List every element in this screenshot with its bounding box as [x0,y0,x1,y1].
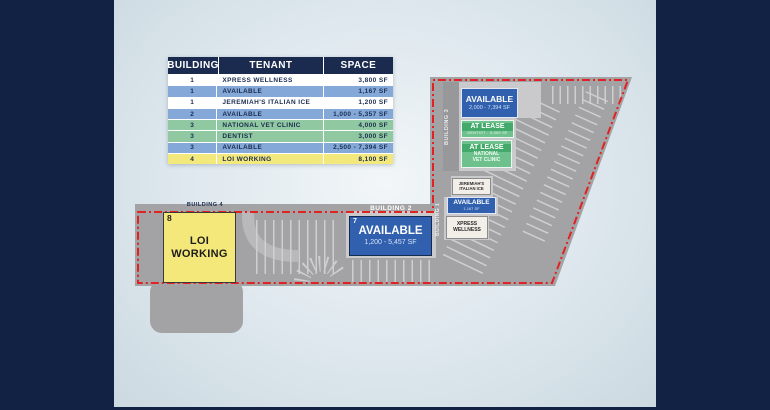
table-row: 1AVAILABLE1,167 SF [168,85,393,96]
building1-available-unit: AVAILABLE 1,167 SF [447,197,496,214]
building2-available-unit: 7 AVAILABLE 1,200 - 5,457 SF [349,216,432,256]
unit-title: AVAILABLE [358,225,422,238]
building3-dentist-unit: AT LEASE DENTIST - 3,000 SF [461,120,514,138]
cell-tenant: NATIONAL VET CLINIC [217,120,324,130]
table-row: 1XPRESS WELLNESS3,800 SF [168,74,393,85]
cell-tenant: AVAILABLE [217,86,324,96]
tenant-line2: ITALIAN ICE [459,187,483,192]
building3-label: BUILDING 3 [444,86,458,168]
cell-building: 1 [168,86,217,96]
unit-detail-line2: VET CLINIC [473,158,501,164]
building3-vet-clinic-unit: AT LEASE NATIONAL VET CLINIC [461,140,512,168]
cell-space: 3,800 SF [324,75,393,85]
table-row: 3DENTIST3,000 SF [168,130,393,141]
unit-tenant: LOI WORKING [164,235,235,260]
header-tenant: TENANT [219,57,324,74]
cell-building: 1 [168,75,217,85]
cell-tenant: DENTIST [217,131,324,141]
cell-space: 2,500 - 7,394 SF [324,143,393,153]
table-row: 3NATIONAL VET CLINIC4,000 SF [168,119,393,130]
cell-tenant: XPRESS WELLNESS [217,75,324,85]
lot-driveway-pad [150,280,243,333]
table-row: 3AVAILABLE2,500 - 7,394 SF [168,142,393,153]
cell-space: 8,100 SF [324,154,393,164]
cell-space: 1,200 SF [324,98,393,108]
cell-tenant: AVAILABLE [217,143,324,153]
cell-building: 3 [168,120,217,130]
unit-space: 1,200 - 5,457 SF [364,239,416,247]
table-row: 4LOI WORKING8,100 SF [168,153,393,164]
lease-table-header: BUILDING TENANT SPACE [168,57,393,74]
building1-jeremiahs-unit: JEREMIAH'S ITALIAN ICE [452,178,491,195]
cell-space: 1,167 SF [324,86,393,96]
cell-space: 3,000 SF [324,131,393,141]
building4-label: BUILDING 4 [170,202,240,208]
lease-table-rows: 1XPRESS WELLNESS3,800 SF1AVAILABLE1,167 … [168,74,393,164]
unit-number: 7 [353,218,357,226]
cell-building: 3 [168,131,217,141]
cell-space: 4,000 SF [324,120,393,130]
page: BUILDING TENANT SPACE 1XPRESS WELLNESS3,… [0,0,770,410]
unit-number: 8 [167,214,172,224]
lease-table: BUILDING TENANT SPACE 1XPRESS WELLNESS3,… [168,57,393,164]
cell-space: 1,000 - 5,357 SF [324,109,393,119]
building2-label: BUILDING 2 [347,205,435,212]
table-row: 2AVAILABLE1,000 - 5,357 SF [168,108,393,119]
header-space: SPACE [324,57,393,74]
header-building: BUILDING [168,57,219,74]
unit-detail: DENTIST - 3,000 SF [467,131,507,135]
cell-tenant: JEREMIAH'S ITALIAN ICE [217,98,324,108]
cell-building: 2 [168,109,217,119]
building1-xpress-unit: XPRESS WELLNESS [446,216,488,239]
unit-space: 2,000 - 7,394 SF [469,105,510,111]
cell-building: 1 [168,98,217,108]
cell-tenant: AVAILABLE [217,109,324,119]
tenant-line2: WELLNESS [453,228,481,234]
unit-title: AT LEASE [462,123,513,131]
building4-loi-unit: 8 LOI WORKING [163,212,236,283]
cell-tenant: LOI WORKING [217,154,324,164]
building3-available-unit: AVAILABLE 2,000 - 7,394 SF [461,88,518,118]
cell-building: 4 [168,154,217,164]
cell-building: 3 [168,143,217,153]
unit-space: 1,167 SF [463,207,479,212]
unit-title: AVAILABLE [466,95,513,105]
building1-label: BUILDING 1 [435,192,445,246]
table-row: 1JEREMIAH'S ITALIAN ICE1,200 SF [168,97,393,108]
